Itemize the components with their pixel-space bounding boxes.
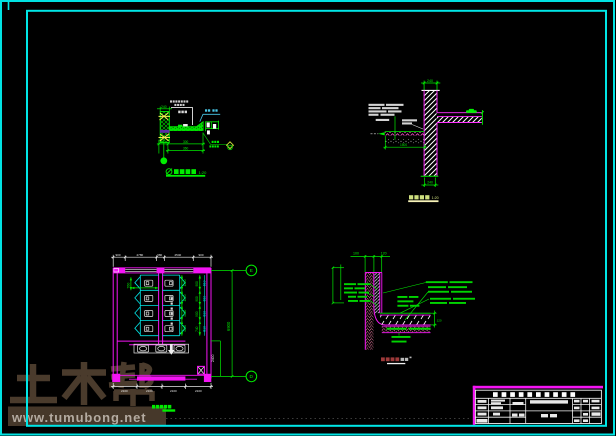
- svg-text:2100: 2100: [121, 389, 128, 393]
- svg-text:100: 100: [353, 252, 359, 256]
- svg-text:2780: 2780: [137, 253, 144, 257]
- svg-text:810: 810: [202, 296, 206, 302]
- svg-text:2100: 2100: [195, 389, 202, 393]
- svg-text:900: 900: [195, 296, 199, 302]
- svg-text:1200: 1200: [183, 279, 187, 286]
- svg-text:680: 680: [157, 253, 162, 257]
- svg-text:6900: 6900: [226, 321, 231, 331]
- svg-text:D: D: [250, 374, 254, 380]
- svg-text:900: 900: [195, 311, 199, 317]
- svg-text:900: 900: [116, 253, 121, 257]
- svg-text:1500: 1500: [400, 143, 407, 147]
- svg-text:2540: 2540: [175, 253, 182, 257]
- svg-text:2400: 2400: [211, 354, 215, 362]
- svg-text:900: 900: [199, 253, 204, 257]
- svg-text:760: 760: [127, 283, 131, 289]
- svg-text:810: 810: [202, 326, 206, 332]
- svg-text:1200: 1200: [183, 309, 187, 316]
- svg-text:1200: 1200: [183, 294, 187, 301]
- svg-text:240: 240: [161, 105, 167, 109]
- svg-text:E: E: [250, 268, 253, 274]
- svg-text:1:20: 1:20: [432, 196, 439, 200]
- svg-text:740: 740: [195, 326, 199, 332]
- svg-text:1:20: 1:20: [199, 170, 208, 175]
- svg-text:810: 810: [202, 311, 206, 317]
- svg-text:2100: 2100: [170, 389, 177, 393]
- svg-text:300: 300: [183, 140, 189, 144]
- svg-text:240: 240: [427, 181, 433, 185]
- svg-text:www.tumubong.net: www.tumubong.net: [11, 410, 147, 425]
- svg-text:900: 900: [195, 281, 199, 287]
- svg-text:120: 120: [437, 319, 442, 323]
- svg-text:810: 810: [202, 280, 206, 286]
- svg-text:240: 240: [427, 79, 433, 83]
- svg-text:1200: 1200: [183, 325, 187, 332]
- svg-text:2100: 2100: [146, 389, 153, 393]
- svg-text:360: 360: [183, 147, 189, 151]
